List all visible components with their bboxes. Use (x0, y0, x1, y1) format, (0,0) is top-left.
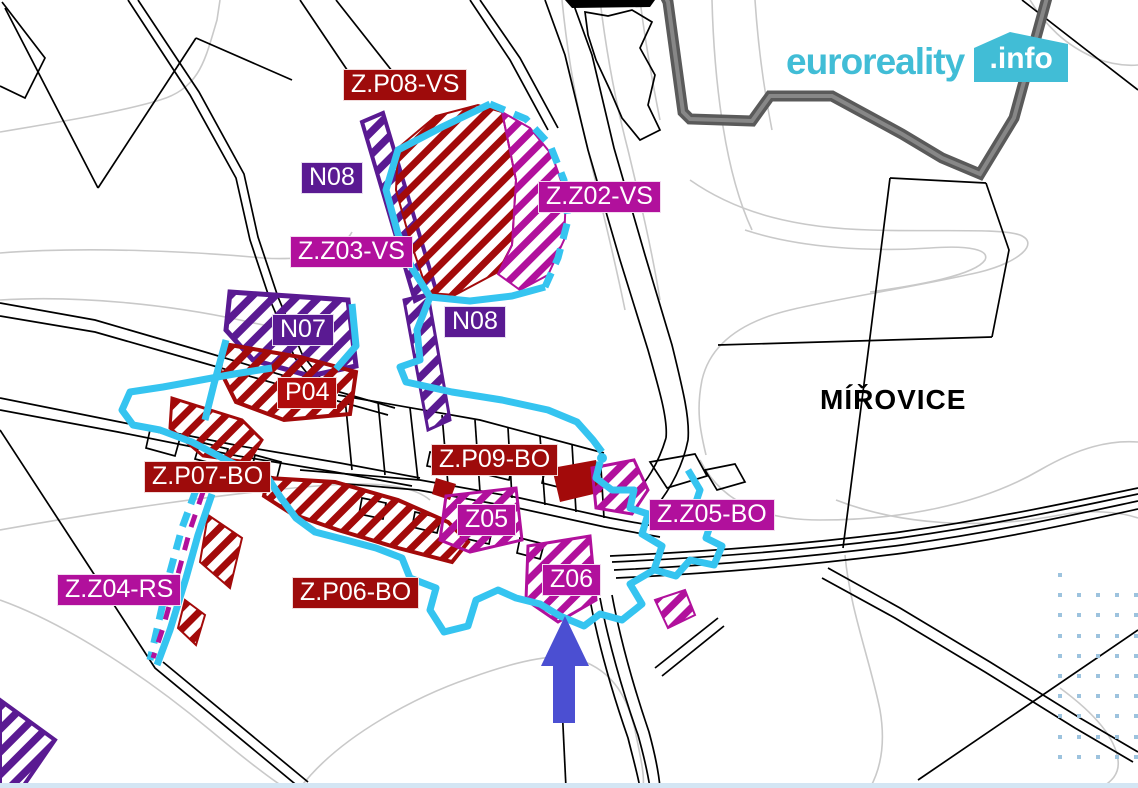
watermark-dot (1115, 654, 1119, 658)
zone-label-z-z03-vs-3: Z.Z03-VS (290, 236, 413, 268)
watermark-dot (1115, 755, 1119, 759)
cyan-dot (597, 453, 607, 463)
logo-tld-text: .info (972, 44, 1070, 74)
watermark-dot (1077, 613, 1081, 617)
watermark-dot (1096, 674, 1100, 678)
watermark-dot (1058, 613, 1062, 617)
zone-label-n08-1: N08 (301, 162, 363, 194)
watermark-dot (1077, 634, 1081, 638)
watermark-dot (1096, 634, 1100, 638)
watermark-dot (1115, 735, 1119, 739)
zone-label-z-z04-rs-12: Z.Z04-RS (57, 574, 181, 606)
watermark-dot (1134, 613, 1138, 617)
watermark-dot (1077, 674, 1081, 678)
zone-label-z-p09-bo-7: Z.P09-BO (431, 444, 558, 476)
zone-label-z05-9: Z05 (457, 504, 516, 536)
watermark-dot (1077, 755, 1081, 759)
zone-label-n07-4: N07 (272, 314, 334, 346)
zone-label-z-p08-vs-0: Z.P08-VS (343, 69, 467, 101)
watermark-dot (1058, 674, 1062, 678)
watermark-dot (1096, 694, 1100, 698)
watermark-dot (1058, 694, 1062, 698)
watermark-dot (1058, 654, 1062, 658)
watermark-dot (1077, 714, 1081, 718)
watermark-dot (1115, 714, 1119, 718)
watermark-dot (1096, 755, 1100, 759)
watermark-dot-grid (1058, 573, 1138, 759)
watermark-dot (1096, 735, 1100, 739)
watermark-dot (1096, 613, 1100, 617)
watermark-dot (1077, 654, 1081, 658)
logo-house-icon: .info (972, 30, 1070, 82)
watermark-dot (1096, 593, 1100, 597)
zone-corridor-red-a (200, 515, 242, 588)
watermark-dot (1058, 755, 1062, 759)
watermark-dot (1134, 634, 1138, 638)
place-name: MÍŘOVICE (820, 384, 966, 416)
municipal-boundary (664, 0, 1048, 174)
bottom-page-strip (0, 783, 1138, 788)
euroreality-logo[interactable]: euroreality .info (786, 30, 1070, 82)
location-arrow-marker (541, 616, 589, 723)
zone-corridor-red-b (178, 600, 205, 645)
watermark-dot (1134, 654, 1138, 658)
zoning-map: Z.P08-VSN08Z.Z02-VSZ.Z03-VSN07N08P04Z.P0… (0, 0, 1138, 788)
zone-label-z-z05-bo-10: Z.Z05-BO (649, 499, 775, 531)
watermark-dot (1134, 593, 1138, 597)
watermark-dot (1115, 674, 1119, 678)
zone-label-z-z02-vs-2: Z.Z02-VS (538, 181, 661, 213)
watermark-dot (1134, 755, 1138, 759)
top-edge-dark-strip (565, 0, 655, 8)
watermark-dot (1058, 573, 1062, 577)
zone-label-z-p07-bo-8: Z.P07-BO (144, 461, 271, 493)
zone-label-n08-5: N08 (444, 306, 506, 338)
watermark-dot (1096, 714, 1100, 718)
zone-label-z06-11: Z06 (542, 564, 601, 596)
map-canvas (0, 0, 1138, 788)
watermark-dot (1058, 593, 1062, 597)
watermark-dot (1096, 654, 1100, 658)
watermark-dot (1058, 634, 1062, 638)
watermark-dot (1115, 694, 1119, 698)
watermark-dot (1077, 694, 1081, 698)
watermark-dot (1077, 593, 1081, 597)
zone-label-p04-6: P04 (277, 377, 337, 409)
zone-sw-purple (0, 700, 55, 788)
watermark-dot (1115, 593, 1119, 597)
zone-zz05-bo-small (655, 590, 695, 628)
watermark-dot (1058, 735, 1062, 739)
watermark-dot (1134, 714, 1138, 718)
watermark-dot (1115, 634, 1119, 638)
watermark-dot (1077, 735, 1081, 739)
watermark-dot (1115, 613, 1119, 617)
watermark-dot (1134, 674, 1138, 678)
logo-brand-text: euroreality (786, 43, 964, 82)
watermark-dot (1058, 714, 1062, 718)
zone-label-z-p06-bo-13: Z.P06-BO (292, 577, 419, 609)
watermark-dot (1134, 735, 1138, 739)
watermark-dot (1134, 694, 1138, 698)
